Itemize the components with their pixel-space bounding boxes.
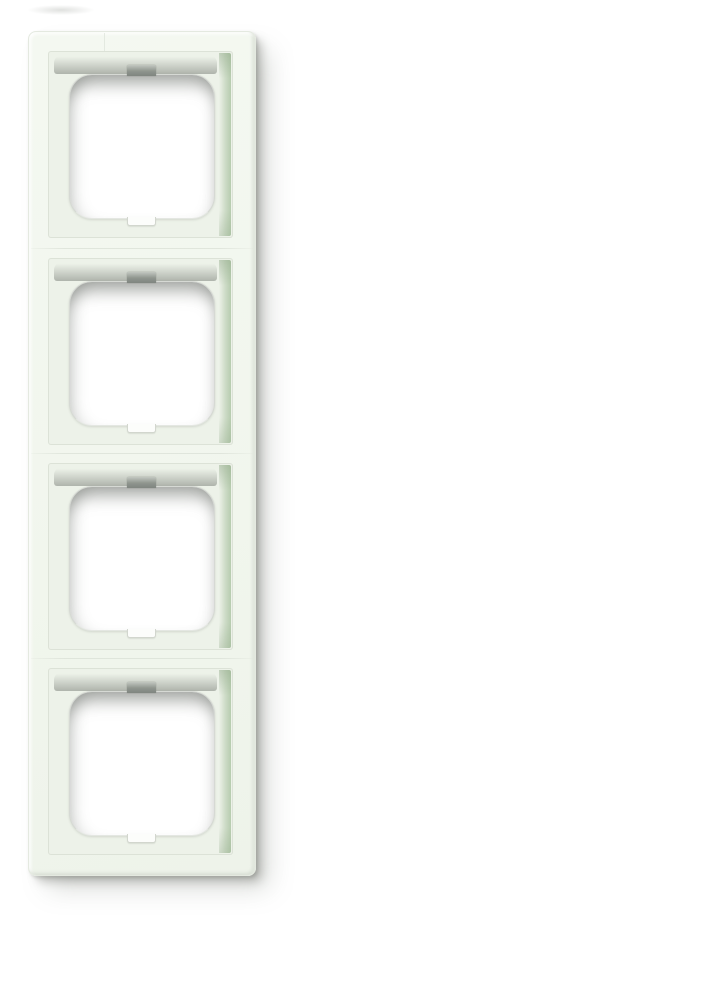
top-claw-notch bbox=[127, 272, 156, 283]
module-opening bbox=[69, 691, 215, 836]
product-photo-canvas bbox=[0, 0, 709, 982]
gang-recess bbox=[48, 463, 233, 650]
switch-cover-frame bbox=[28, 31, 256, 876]
gang-openings bbox=[29, 32, 255, 875]
recess-right-wall-shadow bbox=[219, 260, 231, 443]
top-claw-notch bbox=[127, 477, 156, 488]
bottom-claw-notch bbox=[127, 424, 156, 433]
gang-recess bbox=[48, 51, 233, 238]
bottom-claw-notch bbox=[127, 217, 156, 226]
top-claw-notch bbox=[127, 65, 156, 76]
top-claw-notch bbox=[127, 682, 156, 693]
recess-right-wall-shadow bbox=[219, 53, 231, 236]
photo-artifact-smudge bbox=[28, 5, 94, 15]
module-opening bbox=[69, 74, 215, 219]
module-opening bbox=[69, 281, 215, 426]
recess-right-wall-shadow bbox=[219, 670, 231, 853]
recess-right-wall-shadow bbox=[219, 465, 231, 648]
module-opening bbox=[69, 486, 215, 631]
bottom-claw-notch bbox=[127, 834, 156, 843]
gang-recess bbox=[48, 258, 233, 445]
bottom-claw-notch bbox=[127, 629, 156, 638]
gang-recess bbox=[48, 668, 233, 855]
